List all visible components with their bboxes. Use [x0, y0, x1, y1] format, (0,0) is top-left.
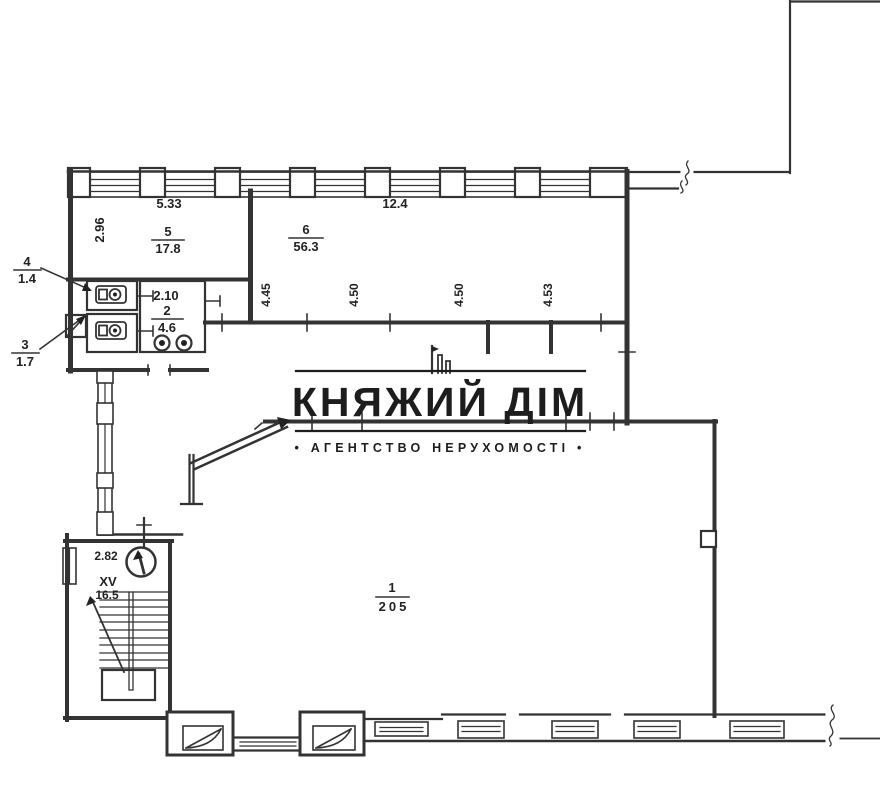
- wall-pier: [97, 403, 113, 424]
- ramp-rails: [191, 421, 287, 469]
- room5-number: 5: [164, 224, 171, 239]
- room1-number: 1: [388, 580, 395, 595]
- toilet-outline: [96, 286, 126, 303]
- room2-number: 2: [163, 303, 170, 318]
- window: [458, 721, 504, 738]
- window: [730, 721, 784, 738]
- wall-pier: [97, 473, 113, 488]
- floor-plan-scan: 5.33 2.96 5 17.8 12.4 6 56.3 4.45 4.50 4…: [0, 0, 880, 800]
- toilet-outline: [96, 322, 126, 339]
- wall-segment: [620, 0, 880, 189]
- room6-segment-dim: 4.53: [541, 283, 555, 307]
- toilet-drain: [113, 293, 117, 297]
- room6-area: 56.3: [293, 239, 318, 254]
- west-corridor-wall: [97, 371, 113, 535]
- toilet-tank: [99, 290, 107, 300]
- logo-tagline: • АГЕНТСТВО НЕРУХОМОСТІ •: [294, 441, 585, 455]
- building-flag: [432, 346, 439, 352]
- window: [375, 722, 428, 736]
- room2-width-dim: 2.10: [153, 288, 178, 303]
- room6-segment-dim: 4.50: [347, 283, 361, 307]
- logo-title: КНЯЖИЙ ДІМ: [292, 379, 588, 425]
- wc-stall-room3: [87, 314, 137, 352]
- room6-number: 6: [302, 222, 309, 237]
- toilet-icon: [96, 322, 126, 339]
- room6-segment-dim: 4.45: [259, 283, 273, 307]
- sink-drain: [159, 340, 165, 346]
- building-icon: [432, 346, 450, 373]
- wall-notch: [701, 531, 716, 547]
- stairs-area: 16.5: [95, 588, 119, 602]
- toilet-tank: [99, 326, 107, 336]
- room3-area: 1.7: [16, 354, 34, 369]
- room5-area: 17.8: [155, 241, 180, 256]
- adjacent-structure: [620, 0, 880, 189]
- room6-width-dim: 12.4: [382, 196, 408, 211]
- window: [634, 721, 680, 738]
- room5-width-dim: 5.33: [156, 196, 181, 211]
- wall-segment: [363, 715, 835, 720]
- wall-pier: [97, 371, 113, 383]
- room1-area: 205: [379, 599, 410, 614]
- sanitary-block: [66, 281, 205, 352]
- break-gap: [826, 712, 839, 744]
- sink-icons: [155, 336, 192, 351]
- wall-segment: [68, 280, 716, 717]
- room4-area: 1.4: [18, 271, 37, 286]
- sink-drain: [181, 340, 187, 346]
- window: [552, 721, 598, 738]
- window-glazing-lines: [240, 742, 296, 746]
- entry-ramp: [181, 417, 291, 504]
- toilet-icon: [96, 286, 126, 303]
- room5-depth-dim: 2.96: [92, 217, 107, 242]
- break-squiggle: [681, 161, 835, 746]
- break-gap: [681, 166, 693, 177]
- room6-segment-dim: 4.50: [452, 283, 466, 307]
- window-glazing-lines: [380, 728, 423, 732]
- break-marks: [681, 161, 839, 746]
- watermark-logo: КНЯЖИЙ ДІМ • АГЕНТСТВО НЕРУХОМОСТІ •: [292, 346, 588, 455]
- window-glazing-lines: [462, 727, 780, 732]
- stairs-number: XV: [99, 574, 117, 589]
- stair-treads: [100, 592, 168, 668]
- room2-area: 4.6: [158, 320, 176, 335]
- room4-number: 4: [23, 254, 31, 269]
- wall-segment: [233, 738, 302, 751]
- leader-room3: [40, 319, 81, 349]
- toilet-drain: [113, 329, 117, 333]
- wall-pier: [97, 512, 113, 535]
- stair-direction-line: [92, 600, 124, 672]
- floor-plan-drawing: 5.33 2.96 5 17.8 12.4 6 56.3 4.45 4.50 4…: [0, 0, 880, 800]
- room3-number: 3: [21, 337, 28, 352]
- bottom-facade: [167, 712, 880, 755]
- stairs-width-dim: 2.82: [94, 549, 118, 563]
